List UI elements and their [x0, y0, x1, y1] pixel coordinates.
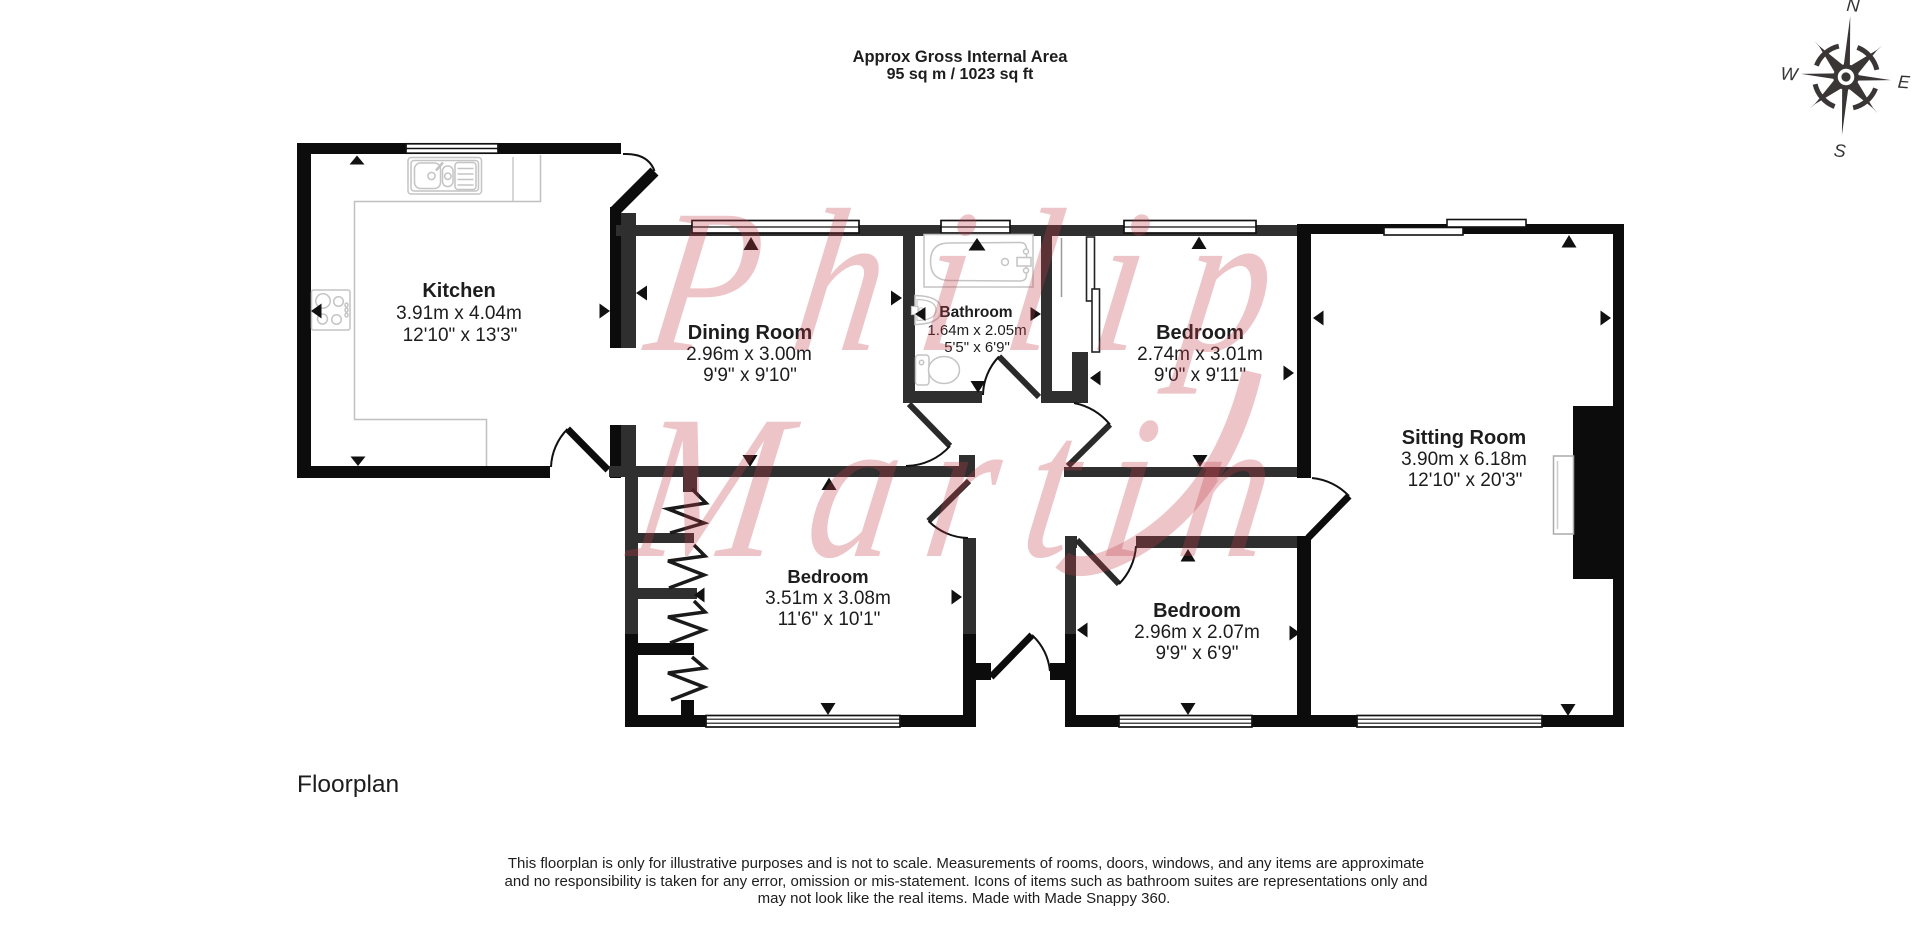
svg-text:Bedroom: Bedroom [1153, 600, 1241, 622]
svg-text:W: W [1780, 63, 1800, 84]
svg-text:12'10" x 20'3": 12'10" x 20'3" [1408, 470, 1523, 491]
svg-text:Floorplan: Floorplan [297, 771, 399, 798]
svg-text:Kitchen: Kitchen [422, 280, 495, 302]
svg-text:3.91m x 4.04m: 3.91m x 4.04m [396, 303, 522, 324]
svg-text:2.96m x 2.07m: 2.96m x 2.07m [1134, 622, 1260, 643]
svg-text:Approx Gross Internal Area: Approx Gross Internal Area [853, 48, 1069, 66]
svg-text:95 sq m / 1023 sq ft: 95 sq m / 1023 sq ft [887, 66, 1034, 83]
svg-text:S: S [1833, 140, 1846, 161]
svg-text:3.90m x 6.18m: 3.90m x 6.18m [1401, 449, 1527, 470]
svg-text:9'9" x 6'9": 9'9" x 6'9" [1155, 643, 1238, 664]
svg-text:11'6" x 10'1": 11'6" x 10'1" [778, 609, 881, 630]
svg-text:and no responsibility is taken: and no responsibility is taken for any e… [505, 873, 1428, 890]
svg-text:may not look like the real ite: may not look like the real items. Made w… [758, 890, 1171, 907]
svg-text:E: E [1897, 72, 1911, 93]
svg-text:12'10" x 13'3": 12'10" x 13'3" [403, 325, 518, 346]
svg-text:N: N [1846, 0, 1861, 16]
svg-text:This floorplan is only for ill: This floorplan is only for illustrative … [508, 855, 1424, 872]
svg-text:Sitting Room: Sitting Room [1402, 427, 1526, 449]
svg-text:Philip: Philip [633, 168, 1327, 395]
